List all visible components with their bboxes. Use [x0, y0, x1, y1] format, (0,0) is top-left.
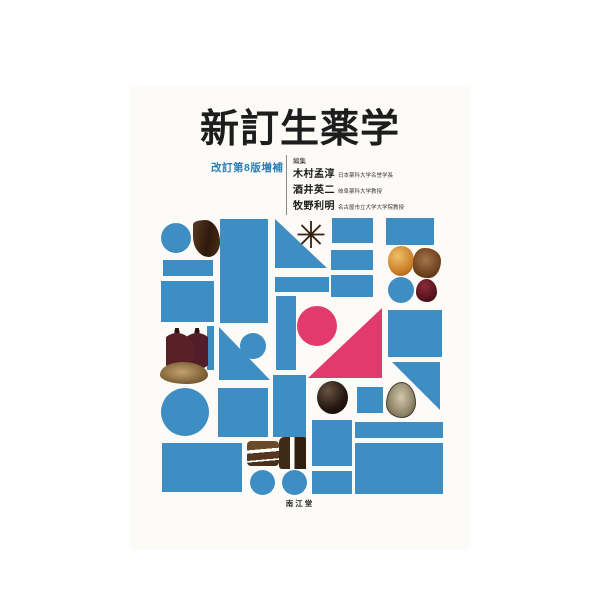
editors-label: 編集 — [293, 155, 413, 165]
mosaic-rect-mid-bottom-2 — [312, 471, 352, 494]
editor-name: 酒井英二 — [293, 185, 335, 196]
mosaic-rect-top-right — [386, 218, 434, 245]
mosaic-circle-bottom-2 — [282, 470, 307, 495]
editor-affiliation: 岐阜薬科大学教授 — [338, 189, 382, 195]
mosaic-square-mid-small — [357, 387, 383, 413]
mosaic-rect-mid-1 — [332, 218, 373, 243]
mosaic-square-right-big — [388, 310, 442, 357]
editor-row: 木村孟淳日本薬科大学名誉学長 — [293, 167, 413, 182]
mosaic-rect-mid-bottom-1 — [312, 420, 352, 466]
editor-name: 牧野利明 — [293, 201, 335, 212]
mosaic-rect-tall-center-left — [220, 219, 268, 323]
mosaic-vbar-center — [276, 296, 296, 370]
photo-tan-pod — [160, 362, 208, 384]
book-cover-photo: ✳ 新訂生薬学 改訂第8版増補 編集 木村孟淳日本薬科大学名誉学長 酒井英二岐阜… — [0, 0, 600, 600]
mosaic-circle-bottom-1 — [250, 470, 275, 495]
photo-oyster-shell — [386, 382, 416, 418]
editors-block: 編集 木村孟淳日本薬科大学名誉学長 酒井英二岐阜薬科大学教授 牧野利明名古屋市立… — [286, 155, 413, 215]
photo-bark-pieces — [247, 441, 279, 466]
mosaic-square-center-left — [218, 388, 268, 437]
mosaic-rect-bottom-right — [355, 443, 443, 494]
mosaic-rect-mid-2 — [331, 250, 373, 270]
mosaic-circle-left-big — [161, 388, 209, 436]
book-title: 新訂生薬学 — [200, 108, 400, 152]
mosaic-circle-small-center — [240, 333, 266, 359]
mosaic-circle-pink — [297, 306, 337, 346]
editor-affiliation: 名古屋市立大学大学院教授 — [338, 205, 404, 211]
photo-two-roots — [279, 437, 309, 469]
mosaic-rect-left-2 — [161, 281, 214, 322]
geometric-mosaic: ✳ — [0, 0, 600, 600]
editor-row: 酒井英二岐阜薬科大学教授 — [293, 183, 413, 198]
mosaic-circle-top-left — [161, 223, 191, 253]
mosaic-circle-right — [388, 277, 414, 303]
photo-star-anise: ✳ — [292, 218, 330, 252]
editor-name: 木村孟淳 — [293, 169, 335, 180]
editor-row: 牧野利明名古屋市立大学大学院教授 — [293, 199, 413, 214]
publisher-name: 南江堂 — [272, 498, 328, 509]
mosaic-thin-bar-left — [207, 326, 214, 370]
photo-brown-lump — [413, 248, 441, 278]
mosaic-rect-bottom-left — [162, 443, 242, 492]
photo-jujube — [416, 279, 437, 302]
mosaic-bar-bottom-right — [355, 422, 443, 438]
edition-label: 改訂第8版増補 — [211, 160, 283, 175]
photo-orange-fruit — [388, 246, 414, 276]
mosaic-rect-center-bottom — [273, 375, 306, 437]
mosaic-bar-left-1 — [163, 260, 213, 276]
mosaic-bar-center — [275, 277, 329, 292]
editor-affiliation: 日本薬科大学名誉学長 — [338, 173, 393, 179]
photo-dark-root — [193, 220, 220, 257]
mosaic-rect-mid-3 — [331, 275, 373, 297]
photo-black-sphere — [317, 381, 348, 414]
